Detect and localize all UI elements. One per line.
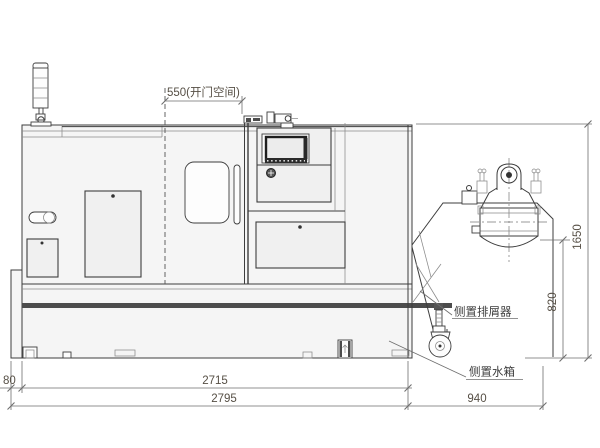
- door-screw: [111, 194, 115, 198]
- conveyor-discharge-head: [470, 158, 548, 262]
- door-handle-bar: [234, 165, 240, 224]
- door-window: [185, 162, 229, 223]
- crt-screen: [266, 137, 306, 160]
- pull-handle: [29, 212, 56, 223]
- large-access-door: [85, 191, 141, 277]
- dim-discharge-height: 820: [547, 292, 559, 311]
- label-chip-conveyor: 侧置排屑器: [454, 305, 512, 319]
- caster-wheel: [429, 303, 451, 357]
- signal-tower: [31, 63, 51, 126]
- foot-bracket: [63, 352, 71, 358]
- screen-side-connector: [304, 138, 308, 159]
- cnc-lathe-dimension-drawing: 550(开门空间) 80 2715 2795 940 1650 820: [0, 0, 600, 448]
- page: { "drawing": { "dimensions": { "door_ope…: [0, 0, 600, 448]
- lower-front-panel: [256, 222, 345, 268]
- dim-conveyor-extension: 940: [467, 393, 486, 405]
- label-water-tank: 侧置水箱: [469, 365, 515, 379]
- tower-base-plate: [31, 122, 51, 126]
- dim-overall-height: 1650: [572, 224, 584, 250]
- cover-bracket: [462, 191, 477, 204]
- machine-enclosure: [22, 125, 412, 358]
- chip-trough-band: [22, 303, 452, 308]
- drum-stub: [472, 226, 480, 233]
- dim-overall-length: 2795: [211, 393, 237, 405]
- machine-body: [11, 125, 452, 358]
- small-access-panel: [27, 239, 58, 277]
- tank-edge-strip: [11, 270, 22, 358]
- dim-machine-length: 2715: [202, 375, 228, 387]
- dim-tank-offset: 80: [3, 375, 16, 387]
- door-rail-hardware: [244, 112, 298, 123]
- leveling-jack: [23, 347, 37, 358]
- panel-screw: [41, 242, 44, 245]
- panel-screw: [298, 225, 302, 229]
- chip-conveyor: [412, 158, 553, 357]
- dim-door-opening: 550(开门空间): [167, 85, 240, 99]
